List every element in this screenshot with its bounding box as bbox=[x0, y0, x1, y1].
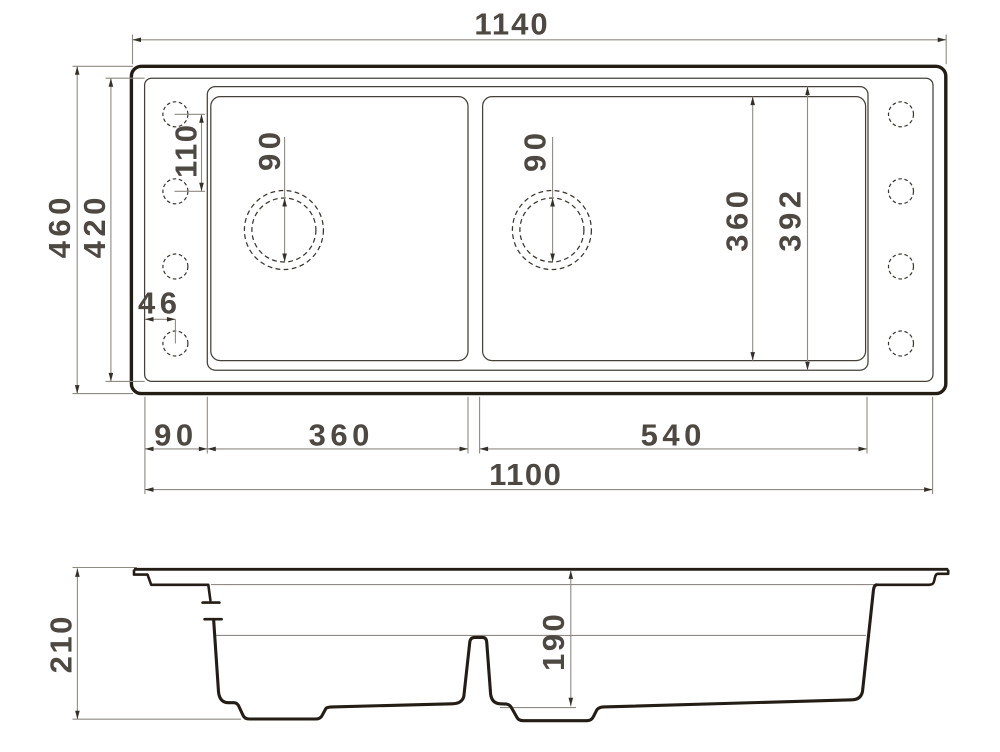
svg-text:392: 392 bbox=[772, 187, 807, 252]
svg-text:460: 460 bbox=[42, 193, 77, 258]
svg-text:110: 110 bbox=[169, 123, 204, 178]
svg-text:46: 46 bbox=[138, 286, 181, 321]
svg-text:360: 360 bbox=[309, 417, 374, 452]
svg-text:420: 420 bbox=[77, 193, 112, 258]
svg-text:360: 360 bbox=[720, 187, 755, 252]
svg-text:210: 210 bbox=[43, 614, 78, 673]
svg-text:190: 190 bbox=[536, 612, 571, 671]
svg-text:1100: 1100 bbox=[489, 457, 562, 492]
svg-text:90: 90 bbox=[517, 129, 552, 172]
svg-text:540: 540 bbox=[641, 417, 706, 452]
svg-text:90: 90 bbox=[154, 417, 197, 452]
svg-text:90: 90 bbox=[252, 128, 287, 171]
svg-text:1140: 1140 bbox=[474, 7, 549, 42]
